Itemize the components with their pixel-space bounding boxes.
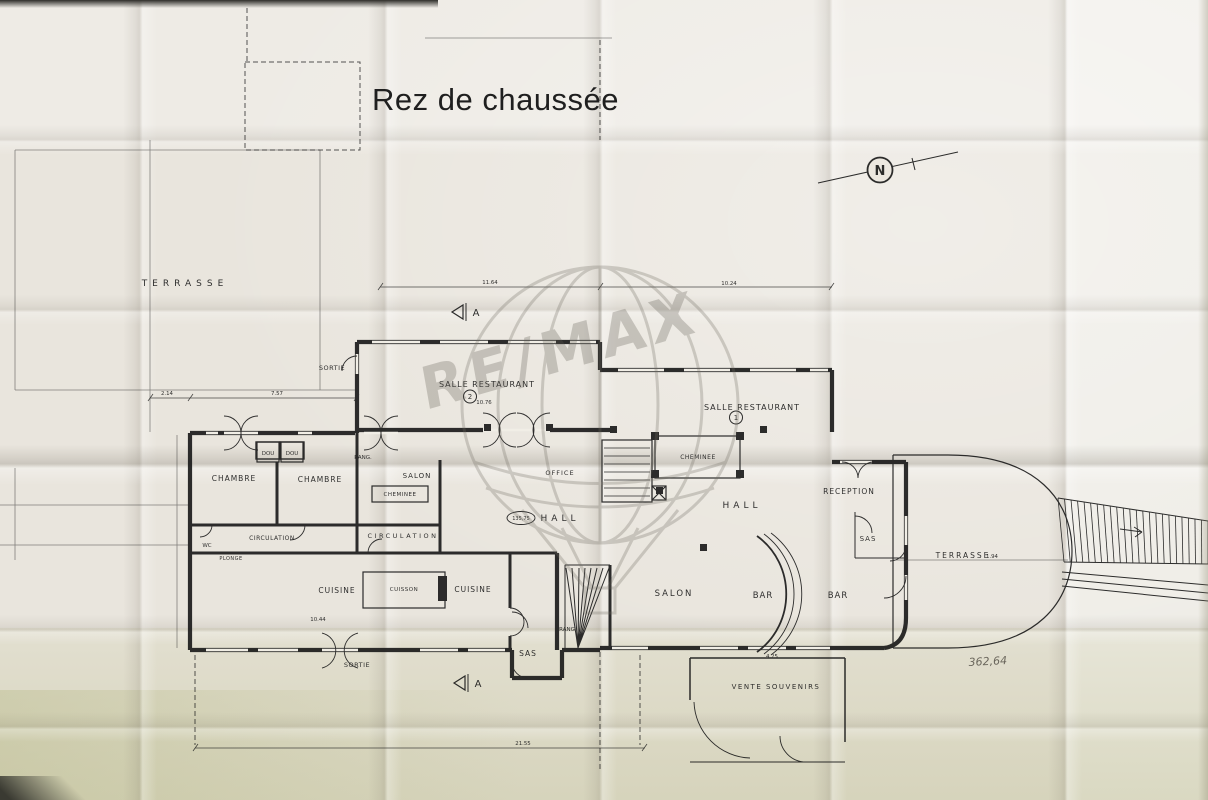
remax-watermark: RE/MAX <box>0 0 1208 800</box>
fold-line-vertical <box>1048 0 1082 800</box>
balloon-basket-icon <box>585 588 615 613</box>
stair-tread-line <box>1169 515 1171 563</box>
section-marker-label: A <box>473 308 480 319</box>
dimension-label: 10.44 <box>310 617 326 623</box>
room-label-cheminee-left: CHEMINEE <box>384 492 417 498</box>
paper-tint-bottom <box>0 628 1208 800</box>
room-label-hall-right: HALL <box>723 501 762 511</box>
level-marker-hall-level: 135,75 <box>512 516 530 522</box>
paper-edge-top <box>0 0 438 8</box>
stair-tread-line <box>1195 519 1196 564</box>
stair-tread-line <box>1182 517 1183 564</box>
fold-line-horizontal-major <box>0 445 1208 485</box>
fold-line-vertical <box>813 0 847 800</box>
paper-tint-top <box>0 0 1208 142</box>
handwritten-measure-note: 362,64 <box>968 654 1007 669</box>
fold-line-horizontal <box>0 295 1208 325</box>
stair-tread-line <box>1123 508 1126 563</box>
section-marker-label: A <box>475 679 482 690</box>
room-label-terrasse-left: TERRASSE <box>141 279 229 289</box>
watermark-text: RE/MAX <box>415 277 704 424</box>
room-label-salon-bar: SALON <box>655 589 694 599</box>
room-label-salle-restaurant-1: SALLE RESTAURANT <box>704 403 800 412</box>
room-label-plonge: PLONGE <box>219 556 242 562</box>
room-label-dou-1: DOU <box>262 451 275 457</box>
stair-tread-line <box>1084 502 1089 562</box>
room-label-rang-stairs: RANG <box>559 627 575 633</box>
stair-tread-line <box>1078 501 1083 562</box>
badge-restaurant-2-number: 2 <box>468 393 472 401</box>
floor-plan-photo: N 362,64 TERRASSESORTIESALLE RESTAURANTS… <box>0 0 1208 800</box>
dimension-label: 1.94 <box>986 554 999 560</box>
room-label-chambre-1: CHAMBRE <box>212 474 257 483</box>
paper-tint-right <box>1066 0 1208 800</box>
room-label-sas-right: SAS <box>860 535 877 543</box>
room-label-bar-right: BAR <box>828 591 849 601</box>
room-label-rang-upper: RANG. <box>354 455 372 461</box>
stair-tread-line <box>1162 514 1164 563</box>
room-label-cuisine-left: CUISINE <box>318 586 355 595</box>
fold-line-horizontal <box>0 125 1208 155</box>
badge-circle-restaurant-1-number <box>730 411 743 424</box>
dimension-label: 11.64 <box>482 280 498 286</box>
dimension-label: 2.14 <box>161 391 174 397</box>
stair-tread-line <box>1117 507 1121 563</box>
room-label-reception: RECEPTION <box>823 487 875 496</box>
room-label-terrasse-right: TERRASSE <box>935 551 991 560</box>
stair-tread-line <box>1175 516 1176 564</box>
room-label-circulation-left: CIRCULATION <box>249 535 295 542</box>
room-label-dou-2: DOU <box>286 451 299 457</box>
page-title: Rez de chaussée <box>372 82 619 118</box>
room-label-hall-center: HALL <box>541 514 580 524</box>
room-label-circulation-right: CIRCULATION <box>367 532 438 540</box>
room-box-dou-2 <box>280 442 304 459</box>
room-label-sortie-lower: SORTIE <box>344 661 370 669</box>
stair-tread-line <box>1156 513 1158 563</box>
room-box-dou-1 <box>256 442 280 459</box>
paper-sheen <box>0 0 1208 800</box>
stair-tread-line <box>1188 518 1189 564</box>
room-label-cheminee-right: CHEMINEE <box>680 454 716 461</box>
room-label-chambre-2: CHAMBRE <box>298 475 343 484</box>
room-label-cuisson: CUISSON <box>390 587 418 593</box>
fold-line-vertical <box>123 0 157 800</box>
paper-tint-bottom-left <box>0 690 520 800</box>
stair-tread-line <box>1091 503 1096 562</box>
stair-tread-line <box>1143 511 1146 563</box>
fold-line-horizontal <box>0 712 1208 742</box>
stair-tread-line <box>1149 512 1151 563</box>
badge-circle-restaurant-2-number <box>464 390 477 403</box>
room-label-sas-stairs: SAS <box>519 649 537 658</box>
dimension-label: 21.55 <box>515 741 530 747</box>
north-label: N <box>875 164 886 179</box>
dimension-label: 10.76 <box>476 400 492 406</box>
room-label-vente-souvenirs: VENTE SOUVENIRS <box>732 683 821 691</box>
stair-tread-line <box>1136 510 1139 563</box>
fold-line-vertical <box>583 0 617 800</box>
stair-tread-line <box>1071 500 1076 562</box>
paper-edge-right <box>1198 0 1208 800</box>
dimension-label: 10.24 <box>721 281 737 287</box>
section-marker-triangle-icon <box>452 305 463 319</box>
stair-tread-line <box>1130 509 1133 563</box>
stair-tread-line <box>1065 499 1071 562</box>
stair-tread-line <box>1097 504 1101 563</box>
fold-line-horizontal <box>0 615 1208 645</box>
stair-tread-line <box>1104 505 1108 563</box>
dimension-label: 7.57 <box>271 391 283 397</box>
fold-line-vertical <box>368 0 402 800</box>
room-label-sortie-upper: SORTIE <box>319 364 345 372</box>
stair-tread-line <box>1110 506 1114 563</box>
paper-edge-bottom-left <box>0 776 115 800</box>
room-label-cuisine-right: CUISINE <box>454 585 491 594</box>
level-marker-oval-hall-level <box>507 512 535 525</box>
floor-plan-drawing: N 362,64 TERRASSESORTIESALLE RESTAURANTS… <box>0 0 1208 800</box>
room-label-salle-restaurant-2: SALLE RESTAURANT <box>439 380 535 389</box>
room-label-office: OFFICE <box>545 469 574 477</box>
badge-restaurant-1-number: 1 <box>734 414 738 422</box>
balloon-envelope-icon <box>462 267 738 543</box>
room-label-salon-left: SALON <box>403 472 432 480</box>
stair-tread-line <box>1058 498 1064 562</box>
section-marker-triangle-icon <box>454 676 465 690</box>
dimension-label: 4.25 <box>766 654 778 660</box>
room-label-wc: WC <box>202 543 211 549</box>
room-label-bar-left: BAR <box>753 591 774 601</box>
